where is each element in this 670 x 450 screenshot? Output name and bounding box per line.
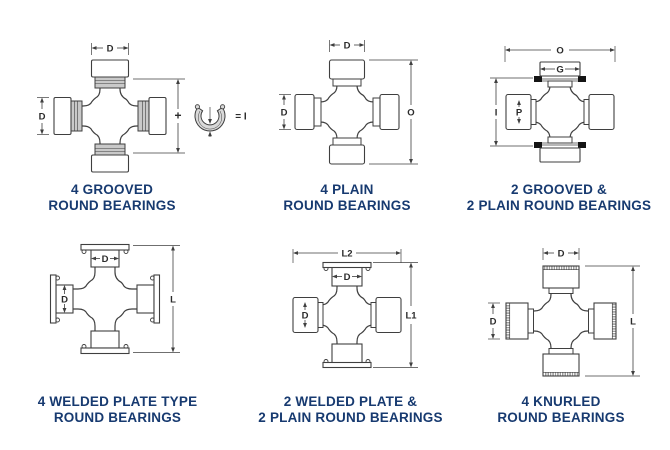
dim-label-D: D bbox=[344, 40, 351, 51]
diagram-cell-4-plain: DDO 4 PLAIN ROUND BEARINGS bbox=[252, 12, 442, 214]
ujoint-drawing-2-grooved-2-plain: OIGP bbox=[448, 12, 670, 182]
diagram-cell-4-grooved: DD+= I 4 GROOVED ROUND BEARINGS bbox=[0, 12, 250, 214]
caption-line2: ROUND BEARINGS bbox=[497, 410, 624, 426]
caption-line2: 2 PLAIN ROUND BEARINGS bbox=[467, 198, 651, 214]
caption-line1: 2 WELDED PLATE & bbox=[258, 394, 442, 410]
dim-label-D: D bbox=[102, 254, 109, 265]
caption-line2: 2 PLAIN ROUND BEARINGS bbox=[258, 410, 442, 426]
dim-label-D: D bbox=[61, 294, 68, 305]
dim-label-L1: L1 bbox=[405, 310, 417, 321]
caption-line1: 2 GROOVED & bbox=[467, 182, 651, 198]
bearing-types-panel: DD+= I 4 GROOVED ROUND BEARINGS DDO 4 PL… bbox=[0, 0, 670, 450]
ujoint-drawing-2-welded-2-plain: L2L1DD bbox=[248, 228, 453, 394]
caption-line2: ROUND BEARINGS bbox=[48, 198, 175, 214]
dim-label-D: D bbox=[302, 310, 309, 321]
dim-label-+: + bbox=[174, 108, 181, 122]
caption: 2 GROOVED & 2 PLAIN ROUND BEARINGS bbox=[467, 182, 651, 214]
ujoint-drawing-4-welded-plate: LDD bbox=[5, 228, 230, 394]
caption-line1: 4 PLAIN bbox=[283, 182, 410, 198]
caption: 4 PLAIN ROUND BEARINGS bbox=[283, 182, 410, 214]
ujoint-drawing-4-knurled: DDL bbox=[452, 228, 670, 394]
snap-ring-icon: = I bbox=[195, 105, 247, 137]
ujoint-drawing-4-plain: DDO bbox=[252, 12, 442, 182]
diagram-cell-2-grooved-2-plain: OIGP 2 GROOVED & 2 PLAIN ROUND BEARINGS bbox=[448, 12, 670, 214]
dim-label-D: D bbox=[558, 248, 565, 259]
dim-label-L2: L2 bbox=[341, 248, 352, 259]
dim-label-G: G bbox=[556, 64, 563, 75]
caption: 4 WELDED PLATE TYPE ROUND BEARINGS bbox=[38, 394, 198, 426]
caption-line1: 4 WELDED PLATE TYPE bbox=[38, 394, 198, 410]
dim-label-D: D bbox=[39, 111, 46, 122]
caption-line2: ROUND BEARINGS bbox=[38, 410, 198, 426]
caption: 4 GROOVED ROUND BEARINGS bbox=[48, 182, 175, 214]
dim-label-D: D bbox=[344, 272, 351, 283]
ujoint-drawing-4-grooved: DD+= I bbox=[0, 12, 250, 182]
caption-line1: 4 GROOVED bbox=[48, 182, 175, 198]
dim-label-D: D bbox=[490, 316, 497, 327]
dim-label-P: P bbox=[516, 107, 523, 118]
dim-label-L: L bbox=[630, 316, 636, 327]
caption-line1: 4 KNURLED bbox=[497, 394, 624, 410]
dim-label-O: O bbox=[556, 45, 563, 56]
snap-ring-equals-label: = I bbox=[235, 111, 247, 122]
caption: 2 WELDED PLATE & 2 PLAIN ROUND BEARINGS bbox=[258, 394, 442, 426]
caption: 4 KNURLED ROUND BEARINGS bbox=[497, 394, 624, 426]
dim-label-I: I bbox=[495, 107, 498, 118]
dim-label-D: D bbox=[281, 107, 288, 118]
dim-label-O: O bbox=[407, 107, 414, 118]
dim-label-L: L bbox=[170, 294, 176, 305]
caption-line2: ROUND BEARINGS bbox=[283, 198, 410, 214]
dim-label-D: D bbox=[107, 43, 114, 54]
diagram-cell-2-welded-2-plain: L2L1DD 2 WELDED PLATE & 2 PLAIN ROUND BE… bbox=[248, 228, 453, 426]
diagram-cell-4-knurled: DDL 4 KNURLED ROUND BEARINGS bbox=[452, 228, 670, 426]
diagram-cell-4-welded-plate: LDD 4 WELDED PLATE TYPE ROUND BEARINGS bbox=[5, 228, 230, 426]
